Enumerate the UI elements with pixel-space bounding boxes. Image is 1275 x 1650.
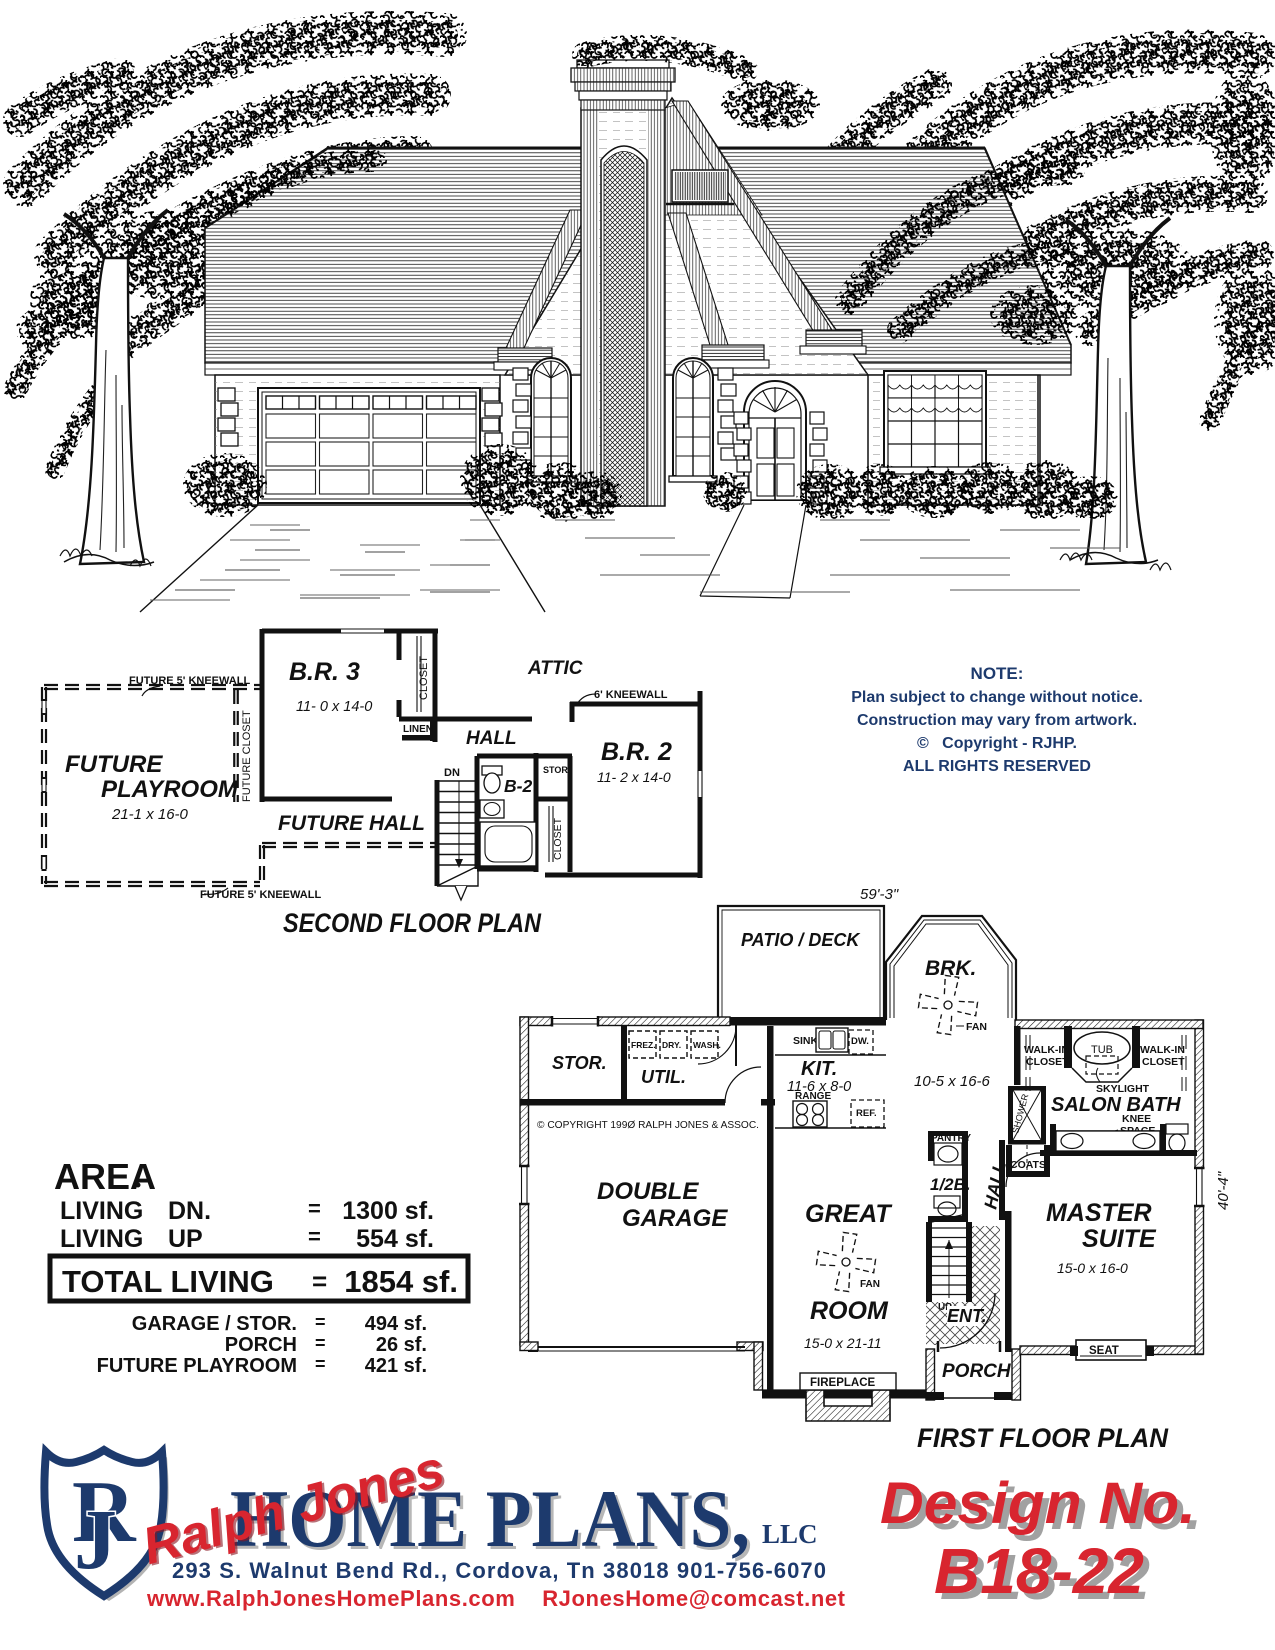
svg-text:© Copyright - RJHP.: © Copyright - RJHP. xyxy=(917,735,1077,752)
svg-text:11- 2 x 14-0: 11- 2 x 14-0 xyxy=(597,769,671,785)
svg-text:TOTAL LIVING: TOTAL LIVING xyxy=(62,1264,274,1299)
svg-text:=: = xyxy=(315,1333,326,1353)
svg-text:B.R. 3: B.R. 3 xyxy=(289,658,360,686)
svg-text:=: = xyxy=(308,1196,321,1221)
svg-text:421 sf.: 421 sf. xyxy=(365,1355,427,1377)
svg-text:FIRST FLOOR PLAN: FIRST FLOOR PLAN xyxy=(917,1423,1168,1453)
svg-text:293 S. Walnut Bend Rd., Cordo: 293 S. Walnut Bend Rd., Cordova, Tn 3801… xyxy=(172,1558,826,1583)
svg-text:GREAT: GREAT xyxy=(805,1200,893,1228)
svg-text:FUTURE CLOSET: FUTURE CLOSET xyxy=(241,710,253,802)
svg-text:WALK-IN: WALK-IN xyxy=(1024,1044,1069,1056)
svg-text:FAN: FAN xyxy=(966,1021,987,1033)
svg-text:ALL RIGHTS RESERVED: ALL RIGHTS RESERVED xyxy=(903,758,1091,775)
svg-text:TUB: TUB xyxy=(1091,1044,1113,1056)
svg-text:10-5 x 16-6: 10-5 x 16-6 xyxy=(914,1073,991,1090)
svg-text:FUTURE HALL: FUTURE HALL xyxy=(278,812,425,835)
svg-text:B.R. 2: B.R. 2 xyxy=(601,738,672,766)
svg-text:FUTURE 5' KNEEWALL: FUTURE 5' KNEEWALL xyxy=(200,889,321,901)
svg-text:21-1 x 16-0: 21-1 x 16-0 xyxy=(111,806,189,823)
svg-text:PORCH: PORCH xyxy=(942,1361,1012,1382)
svg-text:CLOSET: CLOSET xyxy=(418,656,430,700)
svg-text:DW.: DW. xyxy=(851,1036,869,1047)
svg-text:LIVING: LIVING xyxy=(60,1197,143,1225)
svg-text:MASTER: MASTER xyxy=(1046,1199,1152,1227)
svg-text:AREA: AREA xyxy=(54,1156,156,1197)
svg-text:PANTRY: PANTRY xyxy=(931,1133,971,1144)
svg-text:GARAGE / STOR.: GARAGE / STOR. xyxy=(132,1313,297,1335)
svg-text:CLOSET: CLOSET xyxy=(1142,1056,1185,1068)
svg-text:KNEE: KNEE xyxy=(1122,1113,1151,1125)
svg-text:ENT.: ENT. xyxy=(947,1306,987,1326)
svg-text:1/2B.: 1/2B. xyxy=(930,1175,971,1194)
svg-text:LLC: LLC xyxy=(762,1519,818,1549)
svg-text:J: J xyxy=(74,1491,117,1587)
svg-text:Design No.: Design No. xyxy=(880,1471,1196,1536)
svg-text:UTIL.: UTIL. xyxy=(641,1067,686,1087)
svg-text:CLOSET: CLOSET xyxy=(1026,1056,1069,1068)
svg-text:=: = xyxy=(315,1354,326,1374)
svg-text:494 sf.: 494 sf. xyxy=(365,1313,427,1335)
svg-text:PATIO / DECK: PATIO / DECK xyxy=(741,930,861,950)
svg-text:6' KNEEWALL: 6' KNEEWALL xyxy=(594,689,668,701)
svg-text:LIVING: LIVING xyxy=(60,1225,143,1253)
svg-text:REF.: REF. xyxy=(856,1108,877,1119)
svg-text:CLOSET: CLOSET xyxy=(552,817,564,860)
svg-text:=: = xyxy=(308,1224,321,1249)
svg-text:PLAYROOM: PLAYROOM xyxy=(101,776,239,803)
svg-text:STOR.: STOR. xyxy=(543,765,570,775)
svg-text:DRY.: DRY. xyxy=(662,1040,681,1050)
svg-text:UP: UP xyxy=(168,1225,203,1253)
svg-text:15-0 x 21-11: 15-0 x 21-11 xyxy=(804,1335,882,1351)
svg-text:FAN: FAN xyxy=(860,1279,880,1290)
svg-text:ATTIC: ATTIC xyxy=(527,658,583,679)
svg-text:=: = xyxy=(315,1312,326,1332)
svg-text:FREZ.: FREZ. xyxy=(631,1040,656,1050)
svg-text:59'-3": 59'-3" xyxy=(860,886,899,903)
svg-text:DN.: DN. xyxy=(168,1197,211,1225)
svg-text:DN: DN xyxy=(444,767,460,779)
svg-text:FIREPLACE: FIREPLACE xyxy=(810,1377,876,1389)
svg-text:B-2: B-2 xyxy=(504,776,532,796)
svg-text:=: = xyxy=(312,1266,327,1296)
svg-text:LINEN: LINEN xyxy=(403,724,433,735)
svg-text:SALON BATH: SALON BATH xyxy=(1051,1094,1181,1116)
svg-text:11- 0 x 14-0: 11- 0 x 14-0 xyxy=(296,699,372,715)
svg-text:FUTURE: FUTURE xyxy=(65,751,163,778)
svg-text:FUTURE 5' KNEEWALL: FUTURE 5' KNEEWALL xyxy=(129,675,250,687)
svg-text:1854 sf.: 1854 sf. xyxy=(344,1264,458,1299)
svg-text:SECOND FLOOR PLAN: SECOND FLOOR PLAN xyxy=(283,908,541,938)
svg-text:www.RalphJonesHomePlans.com: www.RalphJonesHomePlans.com RJonesHome@c… xyxy=(146,1586,846,1611)
svg-text:PORCH: PORCH xyxy=(225,1334,297,1356)
svg-text:1300 sf.: 1300 sf. xyxy=(342,1197,434,1225)
svg-text:KIT.: KIT. xyxy=(801,1058,837,1080)
svg-text:© COPYRIGHT 199Ø RALPH JON: © COPYRIGHT 199Ø RALPH JONES & ASSOC. xyxy=(537,1119,759,1131)
svg-text:GARAGE: GARAGE xyxy=(622,1205,728,1232)
svg-text:NOTE:: NOTE: xyxy=(971,664,1024,683)
svg-text:B18-22: B18-22 xyxy=(934,1535,1144,1607)
svg-text:COATS: COATS xyxy=(1010,1159,1046,1171)
svg-text:DOUBLE: DOUBLE xyxy=(597,1178,699,1205)
svg-text:Plan subject to change without: Plan subject to change without notice. xyxy=(851,689,1143,706)
svg-text:WASH.: WASH. xyxy=(693,1040,721,1050)
svg-text:554 sf.: 554 sf. xyxy=(356,1225,434,1253)
svg-text:26 sf.: 26 sf. xyxy=(376,1334,427,1356)
svg-text:WALK-IN: WALK-IN xyxy=(1140,1044,1185,1056)
svg-text:HALL: HALL xyxy=(466,728,517,749)
svg-text:15-0 x 16-0: 15-0 x 16-0 xyxy=(1057,1260,1128,1276)
svg-text:SINK: SINK xyxy=(793,1035,819,1047)
svg-text:SUITE: SUITE xyxy=(1082,1225,1157,1253)
svg-text:40'-4": 40'-4" xyxy=(1215,1171,1232,1210)
svg-text:STOR.: STOR. xyxy=(552,1053,607,1073)
svg-text:SEAT: SEAT xyxy=(1089,1345,1119,1357)
svg-text:FUTURE PLAYROOM: FUTURE PLAYROOM xyxy=(97,1355,297,1377)
svg-text:Construction may vary from art: Construction may vary from artwork. xyxy=(857,712,1137,729)
svg-text:ROOM: ROOM xyxy=(810,1297,889,1325)
